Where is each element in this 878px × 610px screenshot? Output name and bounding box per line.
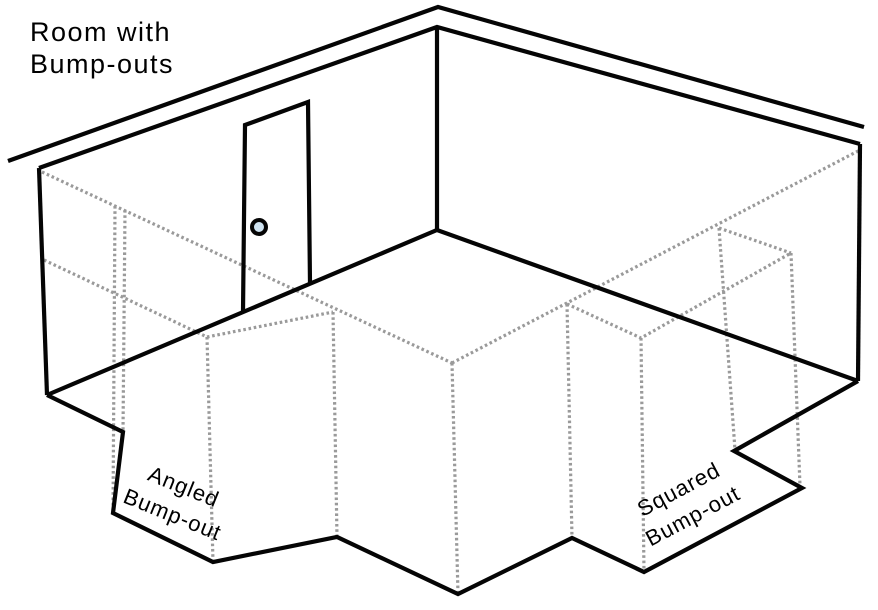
figure-title-line2: Bump-outs	[30, 48, 174, 80]
projection-line-1	[113, 206, 115, 513]
right-wall-right-edge	[858, 144, 860, 381]
projection-line-5	[452, 363, 458, 594]
figure-title-line1: Room with	[30, 16, 174, 48]
projection-line-9	[791, 253, 800, 486]
projection-line-6	[567, 304, 572, 538]
figure-room-with-bumpouts: Room with Bump-outs Angled Bump-out Squa…	[0, 0, 878, 610]
room-diagram	[0, 0, 878, 610]
figure-title: Room with Bump-outs	[30, 16, 174, 80]
squared-bumpout-top-edge	[719, 228, 791, 253]
angled-bumpout-base-edge	[44, 260, 333, 337]
projection-line-2	[123, 210, 125, 432]
left-wall-left-edge	[39, 168, 47, 395]
projection-line-8	[719, 228, 735, 450]
squared-bumpout-base-edge	[567, 253, 791, 338]
projection-line-4	[333, 312, 337, 537]
door-frame	[243, 102, 310, 312]
projection-line-7	[641, 338, 644, 572]
door-knob	[252, 220, 266, 234]
floor-projection-left-edge	[42, 172, 452, 363]
